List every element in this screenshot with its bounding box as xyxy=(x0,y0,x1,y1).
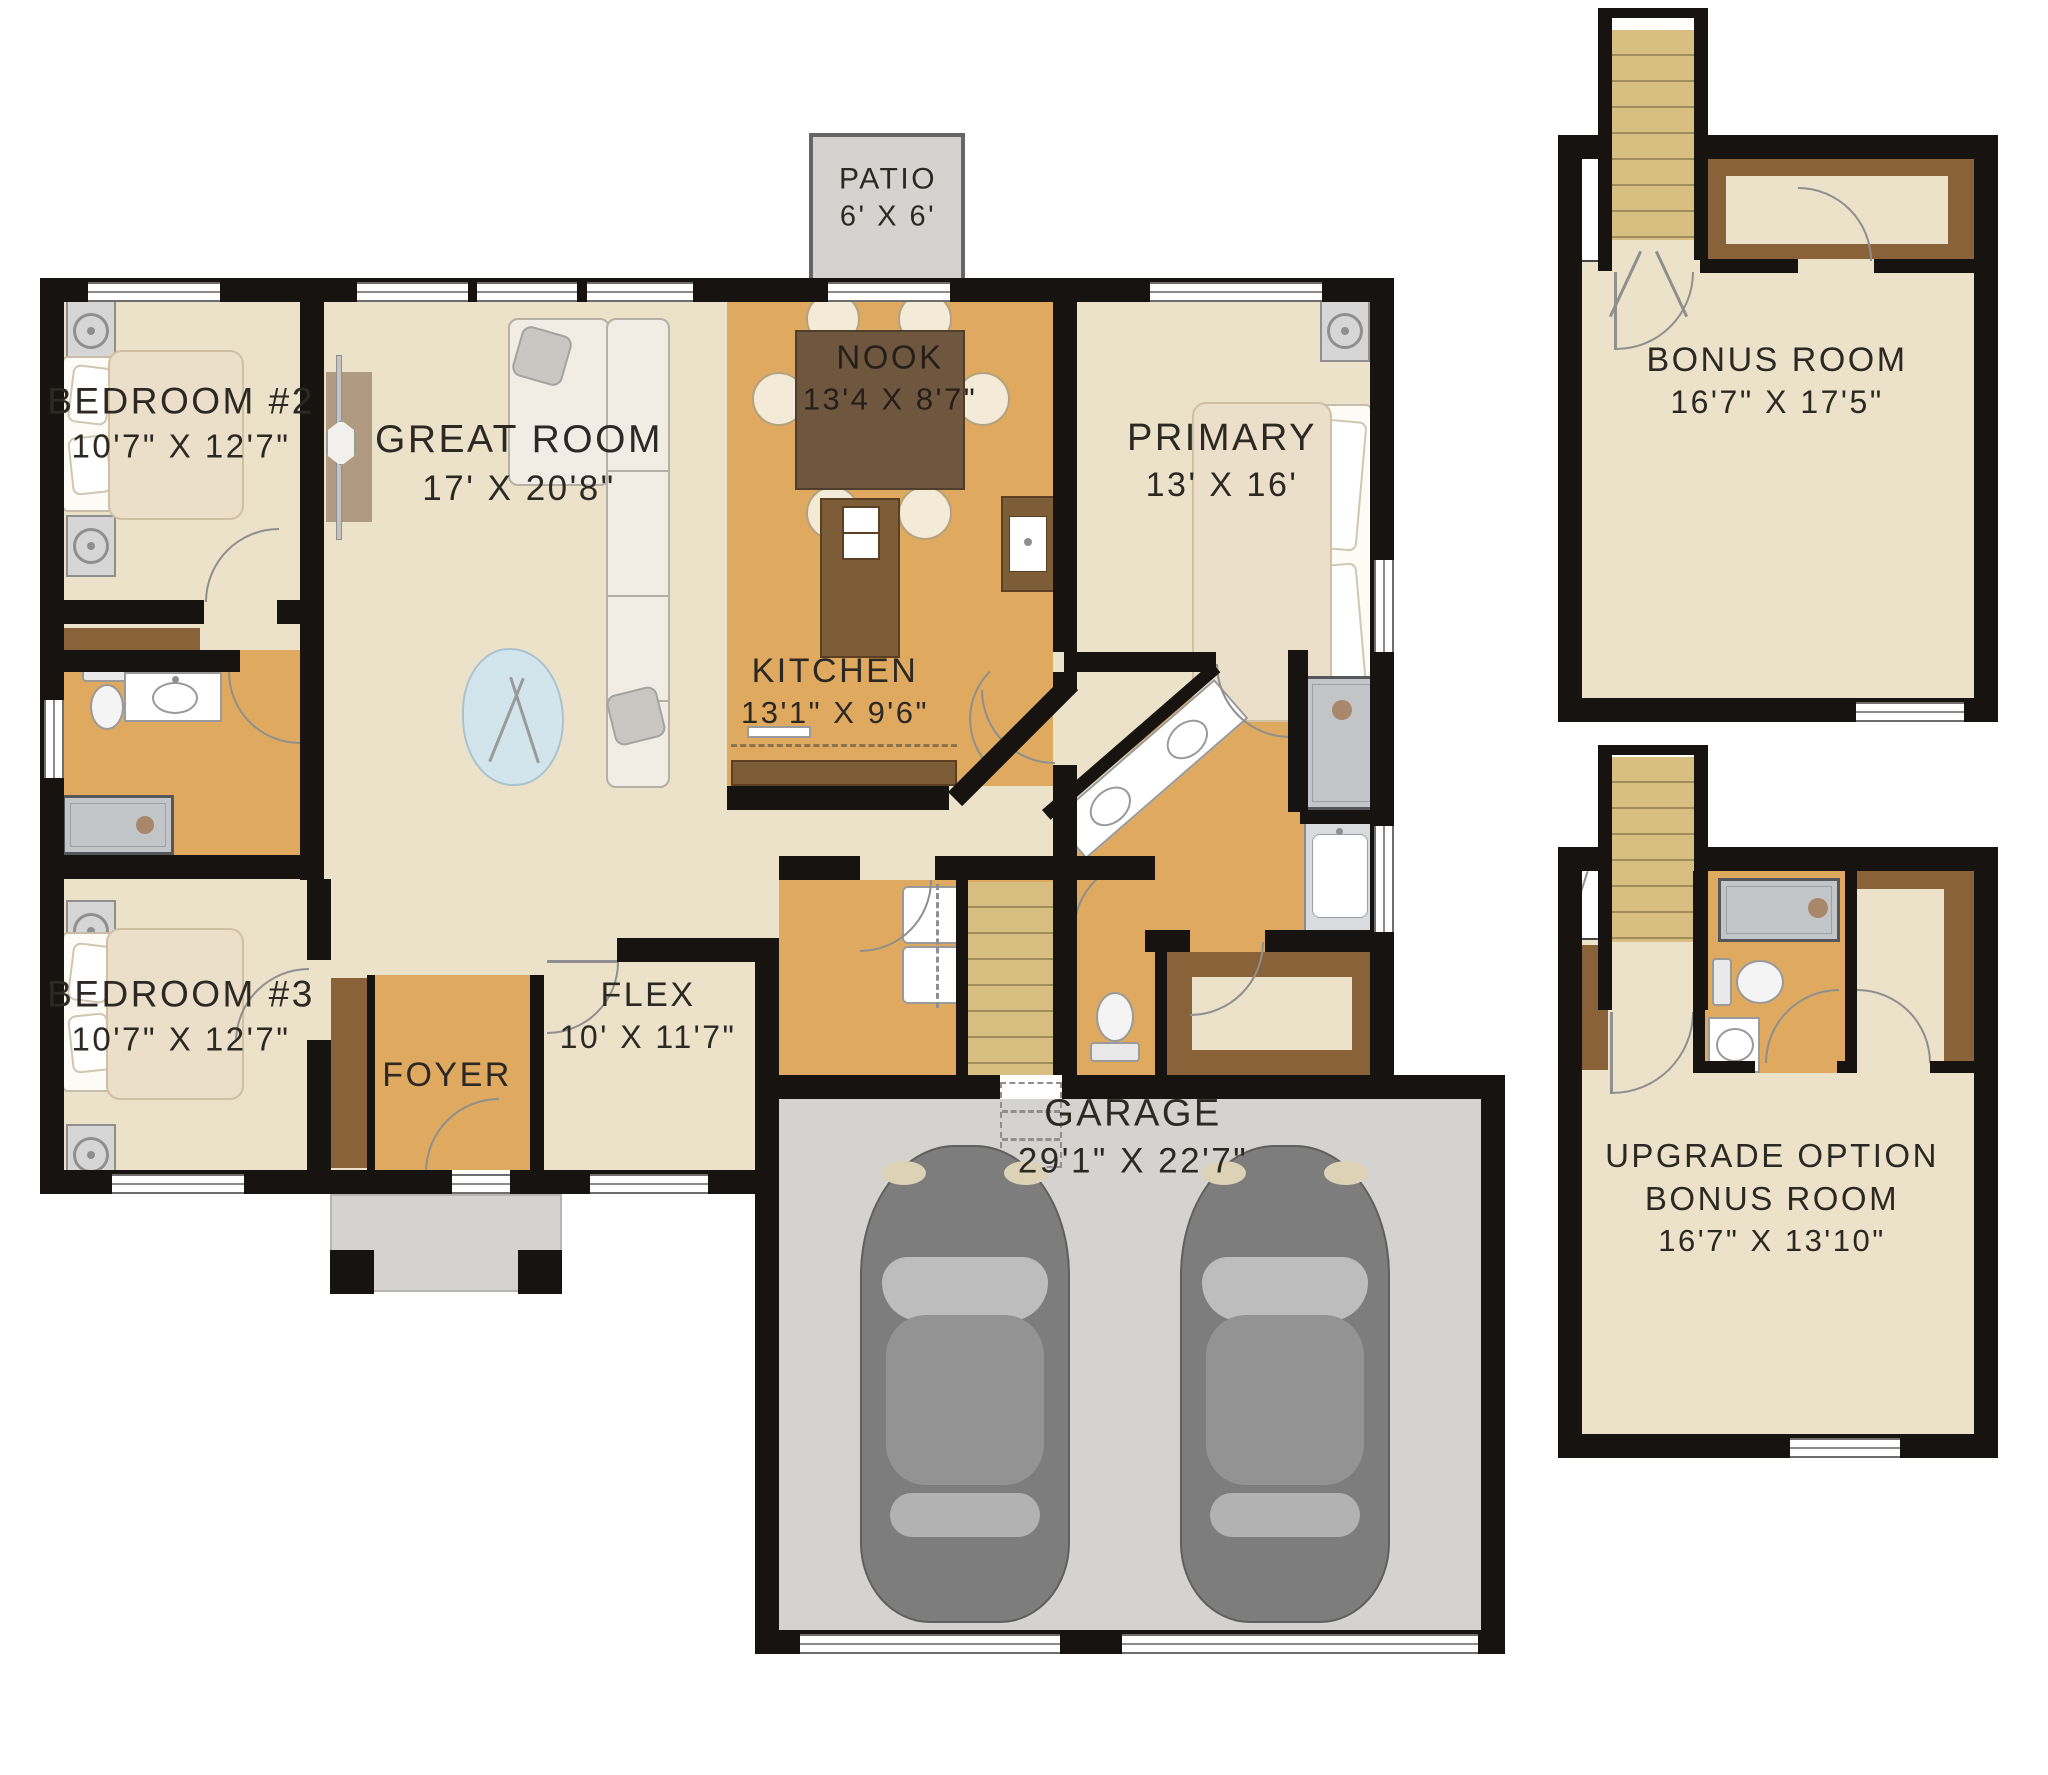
wall-segment xyxy=(1708,847,1998,871)
room-dims: 13'4 X 8'7" xyxy=(803,379,977,419)
staircase xyxy=(1612,30,1694,240)
staircase xyxy=(1612,757,1694,942)
bedroom3-label: BEDROOM #3 10'7" X 12'7" xyxy=(47,971,315,1062)
room-dims: 10' X 11'7" xyxy=(560,1017,737,1059)
shower xyxy=(62,795,174,855)
wall-segment xyxy=(1708,135,1998,159)
door-leaf xyxy=(1610,1012,1613,1094)
wall-segment xyxy=(1598,8,1612,271)
toilet-bowl xyxy=(1736,960,1784,1004)
sofa-cushion-line xyxy=(608,595,668,597)
toilet xyxy=(1712,958,1732,1006)
wall-segment xyxy=(755,1075,1000,1099)
kitchen-label: KITCHEN 13'1" X 9'6" xyxy=(741,649,929,733)
bathtub-inner xyxy=(1312,834,1368,918)
wall-segment xyxy=(1265,930,1377,952)
wall-segment xyxy=(1837,1061,1857,1073)
toilet xyxy=(1090,1042,1140,1062)
wall-segment xyxy=(1145,930,1190,952)
window xyxy=(587,282,693,302)
window xyxy=(1150,282,1322,302)
wall-segment xyxy=(1064,652,1216,672)
wall-segment xyxy=(755,1075,779,1654)
room-name: NOOK xyxy=(803,336,977,379)
bedroom2-label: BEDROOM #2 10'7" X 12'7" xyxy=(47,378,315,469)
garage-label: GARAGE 29'1" X 22'7" xyxy=(1018,1090,1248,1185)
wall-segment xyxy=(1974,847,1998,1458)
wall-segment xyxy=(1974,135,1998,722)
car xyxy=(860,1145,1070,1623)
wall-segment xyxy=(1693,1061,1755,1073)
nook-label: NOOK 13'4 X 8'7" xyxy=(803,336,977,419)
kitchen-counter xyxy=(731,760,957,786)
wall-segment xyxy=(1598,745,1708,755)
window xyxy=(1374,560,1394,652)
ceiling-fan-icon xyxy=(66,300,116,362)
wall-segment xyxy=(300,600,324,880)
faucet-dot xyxy=(172,676,179,683)
wall-segment xyxy=(755,938,779,1075)
window xyxy=(88,282,220,302)
dining-chair xyxy=(898,486,952,540)
primary-label: PRIMARY 13' X 16' xyxy=(1127,414,1317,508)
room-dims: 13' X 16' xyxy=(1127,464,1317,508)
wall-segment xyxy=(1693,871,1705,1073)
flex-label: FLEX 10' X 11'7" xyxy=(560,973,737,1059)
window xyxy=(357,282,468,302)
door-leaf xyxy=(547,960,617,963)
upgrade-closet-band xyxy=(1944,889,1974,1073)
wall-segment xyxy=(40,600,204,624)
wall-segment xyxy=(779,856,860,880)
wall-segment xyxy=(40,650,240,672)
car xyxy=(1180,1145,1390,1623)
staircase xyxy=(968,882,1058,1075)
room-dims: 13'1" X 9'6" xyxy=(741,693,929,733)
upgrade-closet-band xyxy=(1857,871,1974,889)
room-dims: 10'7" X 12'7" xyxy=(47,1019,315,1062)
shower-head-icon xyxy=(1808,898,1828,918)
room-name: PATIO xyxy=(839,160,937,199)
window xyxy=(1856,702,1964,722)
room-name: BONUS ROOM xyxy=(1646,338,1907,382)
porch-pillar xyxy=(330,1250,374,1294)
floor-plan: PATIO 6' X 6' NOOK 13'4 X 8'7" GREAT ROO… xyxy=(0,0,2048,1775)
garage-door xyxy=(800,1634,1060,1654)
sink-basin xyxy=(1716,1028,1754,1062)
front-door-opening xyxy=(452,1174,510,1194)
garage-door xyxy=(1122,1634,1478,1654)
wall-segment xyxy=(1481,1075,1505,1654)
wall-segment xyxy=(1598,8,1708,18)
wall-segment xyxy=(1874,259,1974,273)
toilet-bowl xyxy=(90,684,124,730)
wall-segment xyxy=(530,975,544,1170)
wall-segment xyxy=(935,856,1155,880)
room-dims: 17' X 20'8" xyxy=(375,466,663,512)
burner-dot xyxy=(1024,538,1032,546)
room-name: BEDROOM #2 xyxy=(47,378,315,426)
shower xyxy=(1304,676,1380,810)
linen-closet xyxy=(64,628,200,652)
wall-segment xyxy=(1300,810,1380,824)
patio-sliding-door xyxy=(828,282,950,302)
room-name-line1: UPGRADE OPTION xyxy=(1605,1135,1939,1178)
wall-segment xyxy=(727,786,949,810)
wall-segment xyxy=(1930,1061,1974,1073)
coffee-table xyxy=(462,648,564,786)
room-name: FLEX xyxy=(560,973,737,1017)
wall-segment xyxy=(367,975,375,1170)
room-name: GARAGE xyxy=(1018,1090,1248,1139)
room-name: PRIMARY xyxy=(1127,414,1317,463)
wall-segment xyxy=(1558,847,1582,1458)
foyer-label: FOYER xyxy=(382,1053,512,1097)
room-dims: 6' X 6' xyxy=(839,199,937,237)
window xyxy=(1790,1438,1900,1458)
room-dims: 16'7" X 17'5" xyxy=(1646,382,1907,424)
wall-segment xyxy=(307,879,331,960)
room-dims: 29'1" X 22'7" xyxy=(1018,1139,1248,1185)
window xyxy=(1374,826,1394,932)
patio-label: PATIO 6' X 6' xyxy=(839,160,937,237)
room-name: FOYER xyxy=(382,1053,512,1097)
wall-segment xyxy=(1053,302,1077,652)
ceiling-fan-icon xyxy=(1320,300,1370,362)
bedroom3-closet xyxy=(331,978,367,1168)
shower-head-icon xyxy=(136,816,154,834)
wall-segment xyxy=(1700,259,1798,273)
room-name: BEDROOM #3 xyxy=(47,971,315,1019)
wall-segment xyxy=(1558,135,1582,722)
room-dims: 16'7" X 13'10" xyxy=(1605,1221,1939,1261)
toilet-bowl xyxy=(1096,992,1134,1042)
wall-segment xyxy=(1845,871,1857,1073)
upgrade-bonus-label: UPGRADE OPTION BONUS ROOM 16'7" X 13'10" xyxy=(1605,1135,1939,1261)
great-room-label: GREAT ROOM 17' X 20'8" xyxy=(375,415,663,511)
room-name: GREAT ROOM xyxy=(375,415,663,466)
wall-segment xyxy=(956,880,968,1075)
wall-segment xyxy=(1598,745,1612,1010)
room-name: KITCHEN xyxy=(741,649,929,693)
island-sink-divider xyxy=(842,532,880,534)
shower-head-icon xyxy=(1332,700,1352,720)
tub-faucet-dot xyxy=(1336,828,1343,835)
wall-segment xyxy=(1694,8,1708,260)
wall-segment xyxy=(1155,930,1167,1075)
wall-segment xyxy=(1558,1434,1998,1458)
room-dims: 10'7" X 12'7" xyxy=(47,426,315,469)
window xyxy=(590,1174,708,1194)
bonus-room-label: BONUS ROOM 16'7" X 17'5" xyxy=(1646,338,1907,424)
upper-cabinet-dash xyxy=(731,744,957,747)
porch-pillar xyxy=(518,1250,562,1294)
laundry-bifold-dash xyxy=(936,884,939,1008)
wall-segment xyxy=(1370,278,1394,1099)
wall-segment xyxy=(1288,650,1308,812)
window xyxy=(44,700,64,778)
wall-segment xyxy=(617,938,755,962)
window xyxy=(112,1174,244,1194)
window xyxy=(477,282,577,302)
ceiling-fan-icon xyxy=(66,515,116,577)
room-name-line2: BONUS ROOM xyxy=(1605,1178,1939,1221)
wall-segment xyxy=(40,855,324,879)
sink-basin xyxy=(152,682,198,714)
wall-segment xyxy=(40,1170,452,1194)
